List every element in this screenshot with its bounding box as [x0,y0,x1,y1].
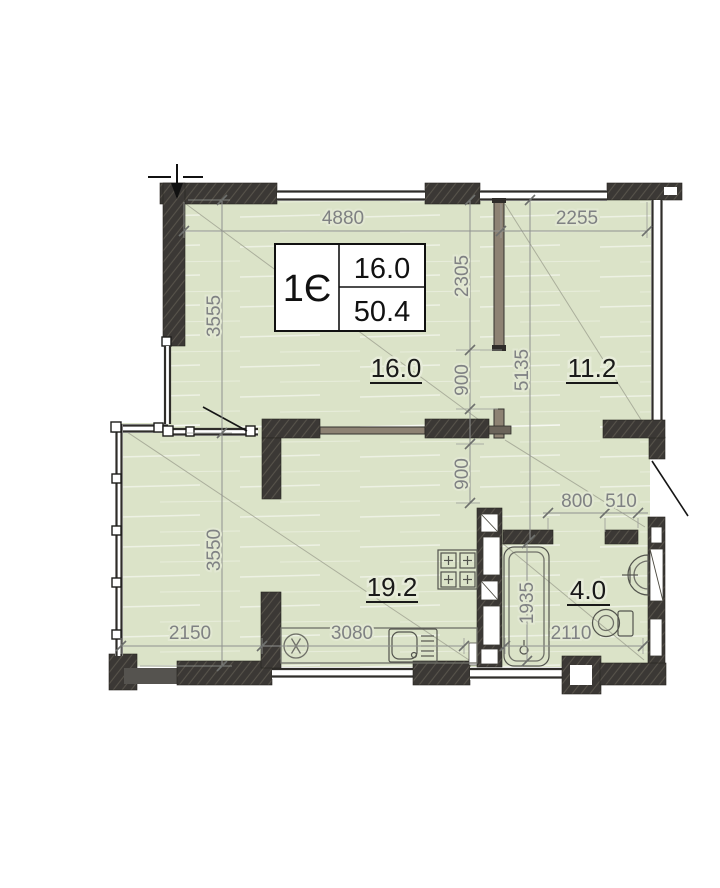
vent-shaft [651,527,662,543]
dim-3555: 3555 [204,295,225,337]
floor-plan-drawing: 4880 2255 3555 3550 2305 900 900 5135 80… [0,0,720,888]
unit-living-area: 16.0 [354,253,410,285]
window-right-bedroom [651,200,663,437]
vent-shaft [481,649,498,664]
mullion [112,526,121,535]
dim-1935: 1935 [517,582,538,624]
window-bottom-bathroom [470,667,563,680]
column-core [570,665,592,685]
wall-bottom-pier-right [413,661,470,685]
partition-block-right [425,419,489,438]
wall-right-endcap [649,437,665,459]
partition-living-bedroom [494,200,504,350]
window-left-living [164,346,171,424]
dim-900-upper: 900 [452,364,473,396]
mullion [154,423,163,432]
dim-2150: 2150 [169,623,211,644]
room-label-bedroom: 11.2 [568,353,617,383]
entry-door-swing [652,461,688,516]
dim-510: 510 [605,491,637,512]
partition-block-left [262,419,320,438]
wall-top-pier-mid [425,183,480,204]
partition-tee [487,426,511,434]
dim-3080: 3080 [331,623,373,644]
room-label-living: 16.0 [371,353,422,383]
wall-bedroom-hall [603,420,665,438]
wall-bottom-band [124,668,177,684]
dim-900-lower: 900 [452,458,473,490]
dim-2305: 2305 [452,255,473,297]
mullion [111,422,121,432]
wall-left-upper [163,183,185,346]
room-label-kitchen: 19.2 [367,572,418,602]
mullion [246,426,255,436]
mullion [186,427,194,436]
mullion [112,578,121,587]
unit-total-area: 50.4 [354,296,410,328]
title-block: 1Є 16.0 50.4 [275,244,425,331]
mullion [163,426,173,436]
vent-shaft [650,619,662,656]
wall-top-right-notch [664,187,677,195]
wall-bottom-right [600,663,666,685]
partition-living-kitchen [320,427,425,434]
bay-left-wall [115,424,123,656]
room-label-bathroom: 4.0 [570,575,606,605]
shaft-wall [477,508,502,667]
vent-shaft [483,537,500,575]
window-top-left [277,190,425,201]
dim-5135: 5135 [512,349,533,391]
mullion [112,630,121,639]
partition-cap [492,198,506,203]
floor-plan: 4880 2255 3555 3550 2305 900 900 5135 80… [0,0,720,888]
wall-right-bathroom [648,517,665,667]
window-left-sill [162,337,171,346]
wall-bath-door-right [605,530,638,544]
dim-2255: 2255 [556,208,598,229]
unit-number: 1Є [283,268,331,310]
vent-shaft [483,606,500,645]
dim-4880: 4880 [322,208,364,229]
dim-3550: 3550 [204,529,225,571]
dim-2110: 2110 [551,623,592,644]
mullion [112,474,121,483]
partition-stub-upper [262,438,281,499]
partition-stub-kitchen [261,592,281,668]
window-bottom-kitchen [272,667,413,679]
dim-800: 800 [561,491,593,512]
